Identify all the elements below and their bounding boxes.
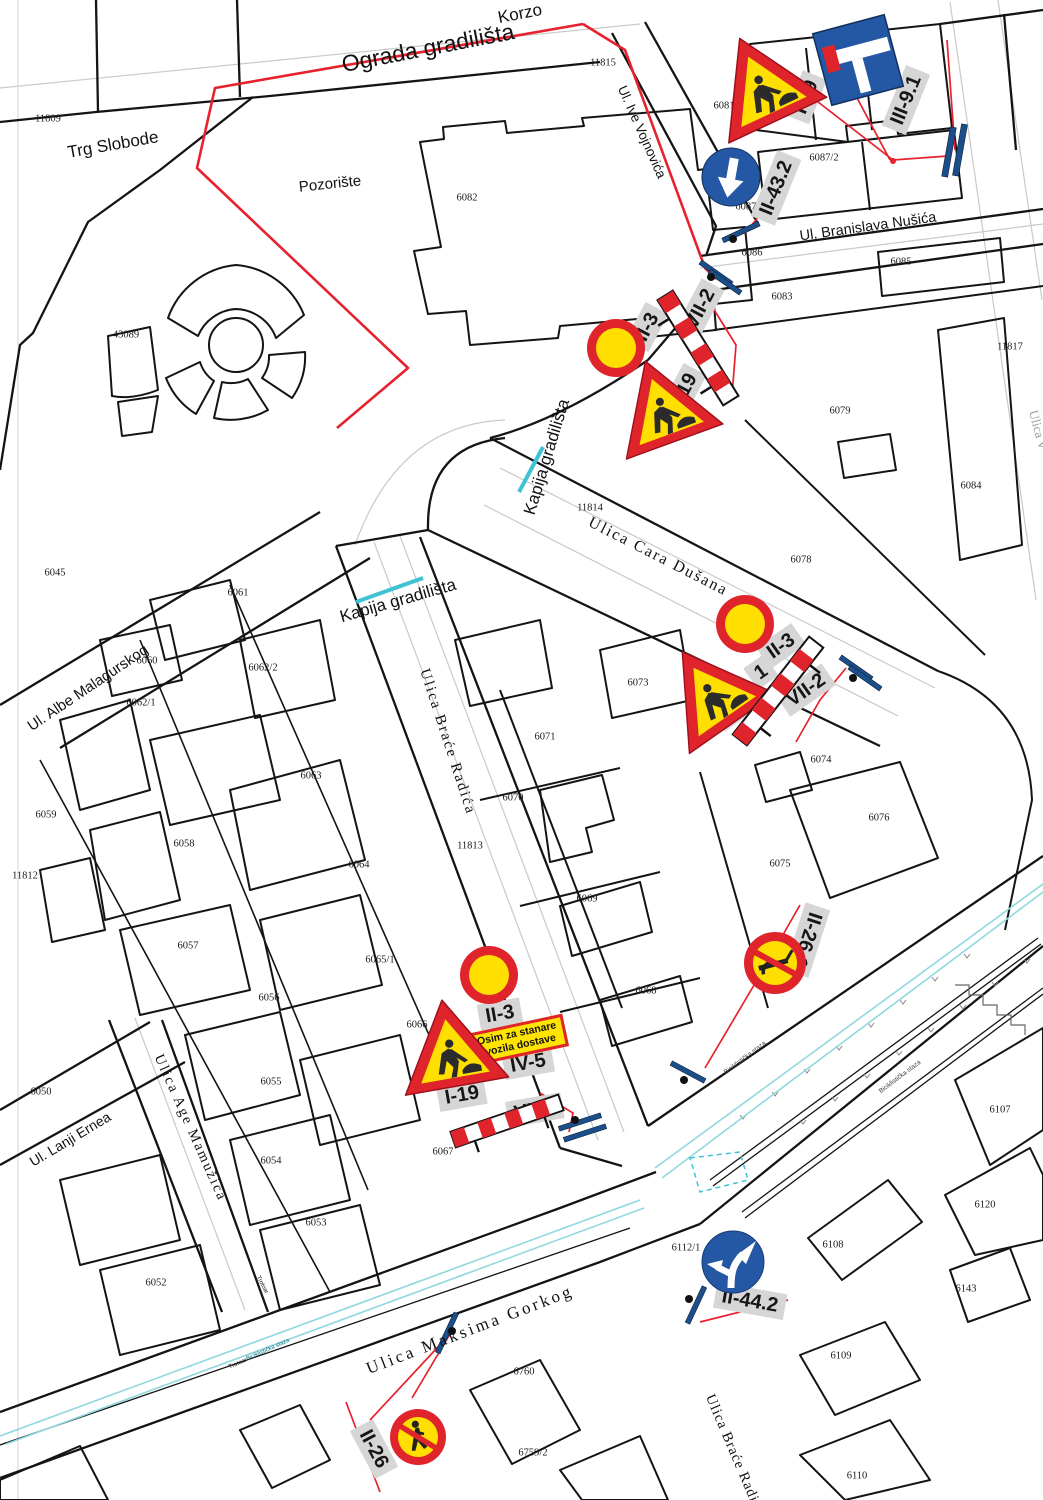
- permitted-directions-sign: [702, 1231, 764, 1293]
- mandatory-direction-sign: [697, 143, 764, 210]
- no-traffic-sign-2: [716, 595, 774, 653]
- roadworks-sign-4: [390, 991, 508, 1095]
- traffic-signs-layer: [0, 0, 1043, 1500]
- dead-end-street-sign: [813, 15, 904, 106]
- construction-traffic-plan-map: KorzoOgrada gradilištaTrg SlobodePozoriš…: [0, 0, 1043, 1500]
- no-pedestrians-sign: [385, 1404, 451, 1470]
- no-carts-sign: [737, 925, 813, 1001]
- roadworks-sign-1: [691, 16, 827, 143]
- no-traffic-sign-1: [587, 319, 645, 377]
- no-traffic-sign-3: [460, 946, 518, 1004]
- barrier-board-3: [450, 1095, 567, 1159]
